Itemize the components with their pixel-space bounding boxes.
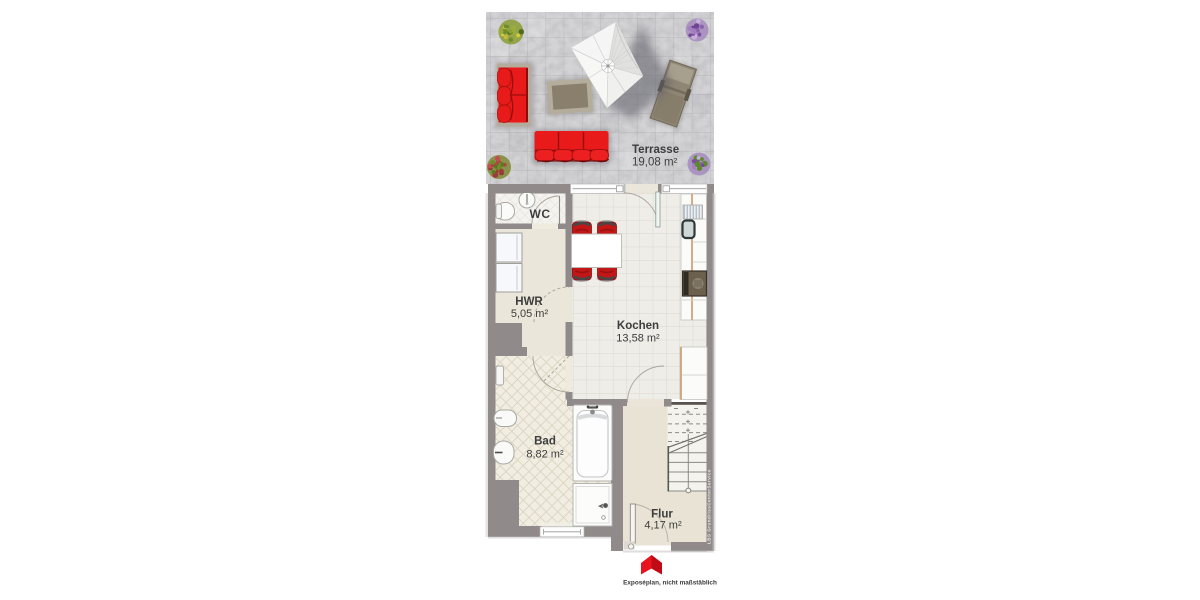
- svg-text:WC: WC: [530, 207, 551, 221]
- svg-text:LBS GrundrissCenterService: LBS GrundrissCenterService: [707, 469, 712, 544]
- svg-text:Kochen: Kochen: [617, 320, 659, 332]
- svg-text:8,82 m²: 8,82 m²: [526, 449, 564, 461]
- svg-text:5,05 m²: 5,05 m²: [511, 308, 549, 320]
- svg-text:19,08 m²: 19,08 m²: [632, 157, 678, 169]
- svg-text:13,58 m²: 13,58 m²: [616, 333, 660, 345]
- svg-text:Bad: Bad: [534, 436, 556, 448]
- svg-text:4,17 m²: 4,17 m²: [644, 520, 682, 532]
- svg-text:Terrasse: Terrasse: [632, 144, 679, 156]
- svg-text:Exposéplan, nicht maßstäblich: Exposéplan, nicht maßstäblich: [623, 580, 717, 587]
- svg-text:HWR: HWR: [515, 296, 543, 308]
